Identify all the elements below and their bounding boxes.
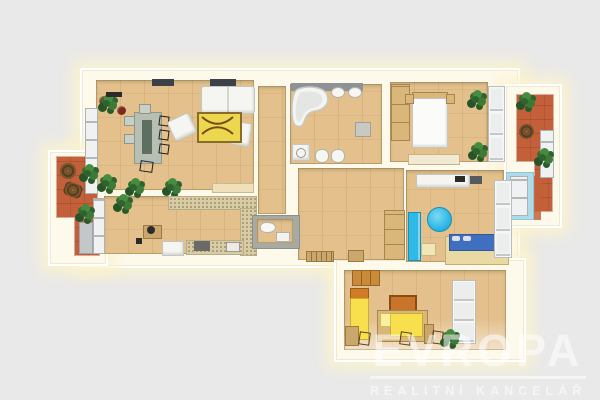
entrance-door [79,222,93,254]
round-rug-cyan [427,207,452,232]
plant-icon [472,96,479,103]
low-cabinet [212,183,254,193]
dining-chair [124,116,135,126]
dining-chair-dark [139,160,153,173]
bedroom-wardrobe [391,84,410,141]
hall-wardrobe [384,210,405,260]
kids-desk [345,326,359,346]
shoe-cabinet [348,250,364,262]
bathroom-fixture [315,149,329,163]
wc-sink [276,232,290,242]
plant-icon [167,184,174,191]
living-room-window [85,108,98,194]
toilet [260,222,276,233]
plant-icon [473,148,480,155]
plant-icon [102,180,109,187]
plant-icon [521,98,528,105]
bathroom-cabinet [355,122,371,137]
kitchen-window [93,198,105,254]
hall-bench [306,251,334,262]
rug-yellow [197,112,242,143]
bedroom-right-window [494,180,512,258]
loggia-window [510,176,528,216]
pillow [452,236,460,241]
watermark-divider [370,376,586,379]
stove [194,241,210,251]
kitchen-sink [226,242,240,252]
watermark: EVROPA REALITNÍ KANCELÁŘ [370,328,586,398]
corridor-floor [258,86,286,214]
bathroom-sink-2 [348,87,362,98]
bedroom-stool [421,243,436,256]
dresser [408,154,460,165]
washing-machine-door [296,148,306,158]
cooking-pot [147,226,155,234]
bedroom-top-window [488,86,505,162]
sofa [201,86,255,114]
nightstand [405,94,414,104]
double-bed-white [412,98,448,148]
plant-icon [84,170,91,177]
plant-icon [118,200,125,207]
wall-frames [470,176,482,184]
floorplan-image: EVROPA REALITNÍ KANCELÁŘ [0,0,600,400]
bathroom-fixture-2 [331,149,345,163]
dining-chair [139,104,151,114]
pillow-2 [463,236,471,241]
dining-table-runner [142,120,152,154]
watermark-title: EVROPA [370,328,586,373]
dining-chair [124,134,135,144]
kitchen-stool [136,238,142,244]
dining-chair-dark [158,143,169,154]
plant-pot [117,106,126,115]
plant-icon [539,154,546,161]
kids-chair [358,331,371,345]
plant-icon [103,100,110,107]
living-top-window [152,79,174,86]
wicker-chair [519,124,534,139]
plant-icon [80,210,87,217]
tv-shelf [106,92,122,97]
plant-icon [130,184,137,191]
living-top-window-2 [210,79,236,86]
corner-bathtub [291,86,331,130]
wicker-table [60,163,76,179]
fridge [162,241,184,256]
watermark-subtitle: REALITNÍ KANCELÁŘ [370,384,586,398]
kids-cabinet-top [352,270,380,286]
dining-chair-dark [158,129,169,140]
bathroom-sink [331,87,345,98]
desk-items [455,176,465,182]
nightstand-2 [446,94,455,104]
cyan-cabinet [408,212,421,261]
